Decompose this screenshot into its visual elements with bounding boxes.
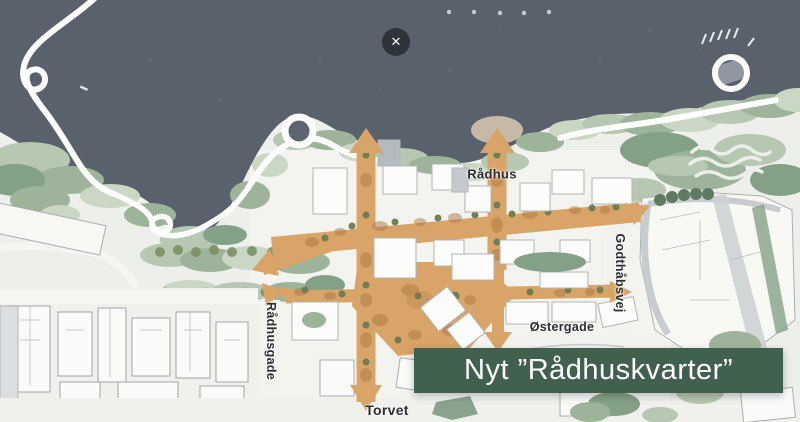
label-torvet: Torvet <box>365 402 409 418</box>
label-radhus: Rådhus <box>467 167 516 182</box>
label-godthabsvej: Godthåbsvej <box>613 233 627 312</box>
screenshot-root: Rådhus Godthåbsvej Østergade Rådhusgade … <box>0 0 800 422</box>
banner-text: Nyt ”Rådhuskvarter” <box>464 354 733 387</box>
courtyard-green <box>514 252 586 272</box>
label-radhusgade: Rådhusgade <box>264 302 278 380</box>
close-icon: ✕ <box>391 34 402 50</box>
courtyard-green-west <box>302 312 326 328</box>
path-ring-west <box>285 117 313 145</box>
title-banner: Nyt ”Rådhuskvarter” <box>414 348 783 393</box>
label-ostergade: Østergade <box>530 320 595 334</box>
existing-block-east <box>640 188 795 360</box>
close-button[interactable]: ✕ <box>382 28 410 56</box>
